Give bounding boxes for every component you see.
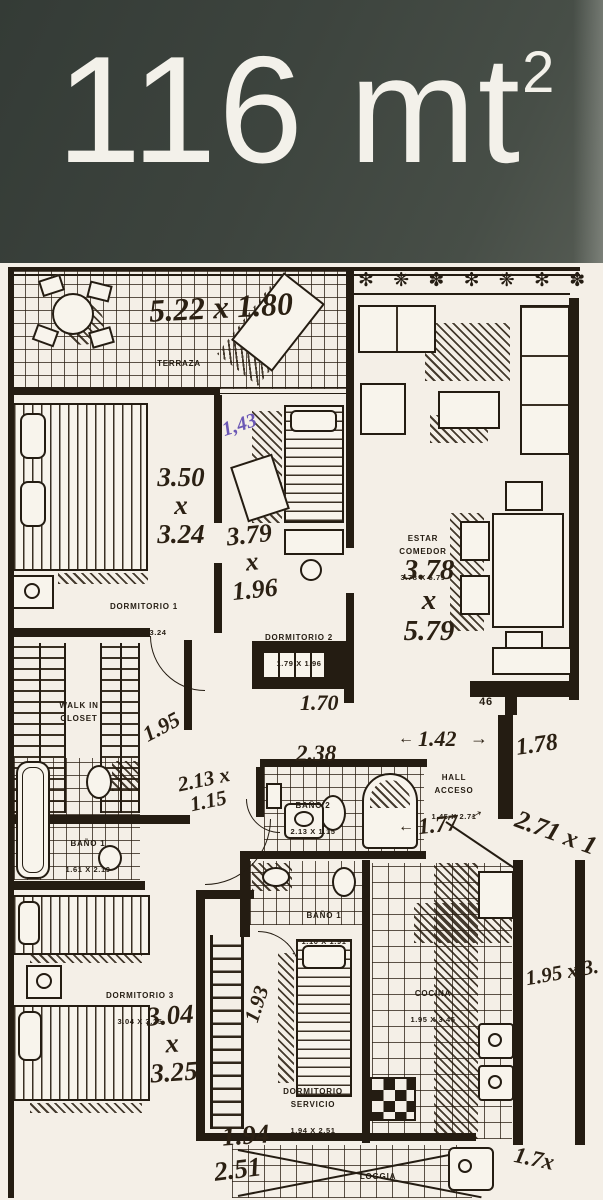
- room-label-loggia: LOGGIA 3.00 X 1.95: [336, 1156, 420, 1200]
- room-label-terraza: TERRAZA 5.22 X 1.80: [148, 343, 210, 410]
- wall: [362, 860, 370, 1143]
- dining-chair: [505, 481, 543, 511]
- room-label-dormitorio1: DORMITORIO 1 3.50 X 3.24: [100, 586, 188, 653]
- area-title: 116 mt2: [18, 8, 593, 213]
- bed-shadow: [30, 953, 142, 963]
- room-name: DORMITORIO SERVICIO: [276, 1085, 350, 1112]
- room-name: WALK IN CLOSET: [46, 699, 112, 726]
- coffee-table: [438, 391, 500, 429]
- pillow: [20, 413, 46, 459]
- pillow: [18, 1011, 42, 1061]
- stove-icon: [370, 1077, 416, 1121]
- sofa-shadow: [425, 323, 510, 381]
- plant-icons: ✻ ❋ ✽ ✻ ❋ ✻ ✽ ❋ ✻: [358, 269, 572, 292]
- wall: [505, 697, 517, 715]
- lamp-icon: [24, 583, 40, 599]
- arrow-left-icon: ←: [398, 731, 414, 748]
- handwriting-dorm1-dims: 3.50 x 3.24: [150, 463, 212, 548]
- wall: [513, 860, 523, 1145]
- sofa-long: [520, 305, 570, 455]
- room-dims: 2.13 X 1.15: [284, 826, 342, 839]
- wall: [346, 298, 354, 548]
- appliance-dial-icon: [488, 1033, 502, 1047]
- handwriting-17x: 1.7x: [512, 1143, 556, 1175]
- handwriting-dorm3-dims: 3.04 x 3.25: [135, 999, 209, 1089]
- handwriting-dorm2-dims: 3.79 x 1.96: [214, 518, 290, 607]
- room-name: DORMITORIO 2: [250, 631, 348, 645]
- pillow: [20, 481, 46, 527]
- handwriting-251: 2.51: [212, 1152, 262, 1186]
- bed-shadow: [58, 573, 148, 584]
- handwriting-177: 1.77: [417, 811, 460, 839]
- closet-shelving: [210, 935, 244, 1129]
- room-name: HALL ACCESO: [424, 771, 484, 798]
- sofa: [358, 305, 436, 353]
- wall: [240, 851, 426, 859]
- wall: [575, 860, 585, 1145]
- stool: [300, 559, 322, 581]
- room-dims: 1.95 X 3.45: [404, 1014, 462, 1027]
- room-label-bano1-suite: BAÑO 1 1.61 X 2.19: [56, 823, 120, 890]
- handwriting-142: 1.42: [418, 727, 457, 750]
- room-name: LOGGIA: [336, 1170, 420, 1184]
- bathtub-inner: [22, 767, 44, 873]
- floor-plan: ✻ ❋ ✽ ✻ ❋ ✻ ✽ ❋ ✻: [0, 263, 603, 1200]
- bed-shadow: [278, 953, 294, 1083]
- toilet: [332, 867, 356, 897]
- wall: [569, 298, 579, 700]
- room-name: BAÑO 2: [284, 799, 342, 813]
- handwriting-238: 2.38: [296, 742, 336, 766]
- handwriting-195x3: 1.95 x 3.: [511, 952, 603, 991]
- terrace-table: [52, 293, 94, 335]
- room-name: BAÑO 1: [56, 837, 120, 851]
- dining-chair: [460, 575, 490, 615]
- arrow-right-icon: →: [470, 729, 488, 748]
- handwriting-178: 1.78: [514, 730, 559, 761]
- mark-46: 46: [472, 693, 500, 712]
- room-label-dormitorio2: DORMITORIO 2 1.79 X 1.96: [250, 617, 348, 684]
- side-table: [284, 529, 344, 555]
- sink: [262, 867, 290, 887]
- appliance-dial-icon: [488, 1075, 502, 1089]
- handwriting-195: 1.95: [139, 707, 184, 745]
- drain-icon: [458, 1159, 472, 1173]
- pillow: [18, 901, 40, 945]
- arrow-left-icon: ←: [398, 819, 414, 836]
- room-label-walkin: WALK IN CLOSET: [46, 685, 112, 739]
- room-name: TERRAZA: [148, 357, 210, 371]
- lamp-icon: [36, 973, 52, 989]
- dining-table: [492, 513, 564, 628]
- bed-shadow: [30, 1103, 142, 1113]
- sideboard: [492, 647, 572, 675]
- area-exponent: 2: [522, 40, 554, 105]
- handwriting-estar-dims: 3.78 x 5.79: [394, 555, 464, 646]
- area-value: 116 mt: [57, 25, 522, 195]
- wall: [214, 395, 222, 523]
- room-dims: 1.79 X 1.96: [250, 658, 348, 671]
- handwriting-170: 1.70: [300, 691, 339, 714]
- room-name: DORMITORIO 1: [100, 600, 188, 614]
- toilet: [86, 765, 112, 799]
- planter-edge: [352, 293, 570, 295]
- pillow: [290, 410, 337, 432]
- handwriting-194: 1.94: [221, 1119, 270, 1151]
- handwriting-271: 2.71 x 1: [495, 799, 603, 866]
- handwriting-193: 1.93: [240, 983, 272, 1025]
- room-label-cocina: COCINA 1.95 X 3.45: [404, 973, 462, 1040]
- sink: [266, 783, 282, 809]
- corner-shadow: [112, 761, 140, 791]
- handwriting-bano2-dims: 2.13 x 1.15: [159, 760, 252, 821]
- fridge-icon: [478, 871, 514, 919]
- window: [220, 387, 352, 394]
- wall: [260, 759, 427, 767]
- room-dims: 1.61 X 2.19: [56, 864, 120, 877]
- dining-chair: [460, 521, 490, 561]
- room-dims: 1.94 X 2.51: [276, 1125, 350, 1138]
- room-dims: 3.50 X 3.24: [100, 627, 188, 640]
- room-name: BAÑO 1: [294, 909, 354, 923]
- room-dims: 5.22 X 1.80: [148, 384, 210, 397]
- room-label-dormservicio: DORMITORIO SERVICIO 1.94 X 2.51: [276, 1071, 350, 1152]
- armchair: [360, 383, 406, 435]
- room-label-bano1: BAÑO 1 1.10 X 1.91: [294, 895, 354, 962]
- room-dims: 1.10 X 1.91: [294, 936, 354, 949]
- room-label-bano2: BAÑO 2 2.13 X 1.15: [284, 785, 342, 852]
- room-name: COCINA: [404, 987, 462, 1001]
- header-banner: 116 mt2: [0, 0, 603, 263]
